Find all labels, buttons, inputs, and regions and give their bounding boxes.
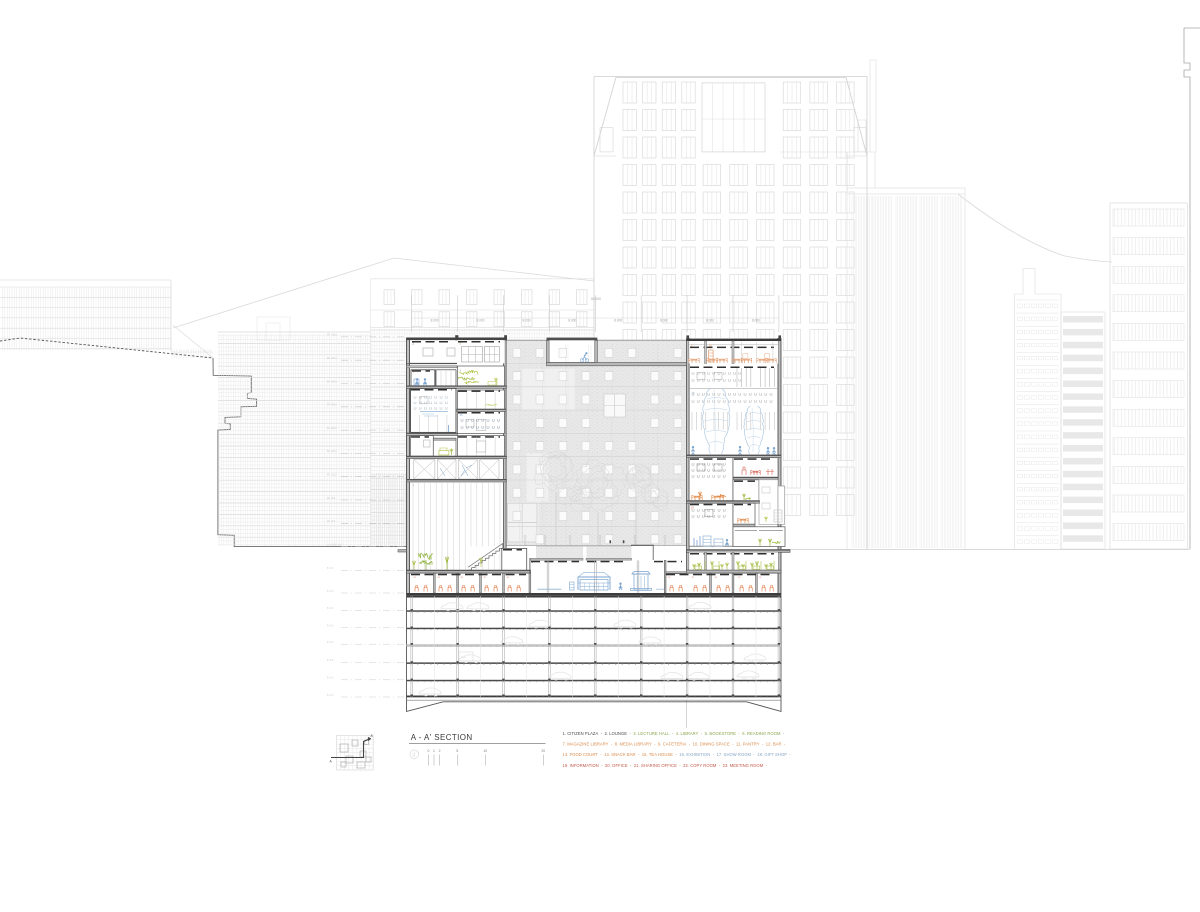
- svg-text:8.000: 8.000: [706, 319, 714, 323]
- svg-text:8.000: 8.000: [568, 319, 576, 323]
- svg-text:B -6.0: B -6.0: [327, 607, 334, 610]
- svg-text:5F +16.0: 5F +16.0: [327, 450, 337, 453]
- svg-text:8.000: 8.000: [477, 319, 485, 323]
- svg-text:GL +0.00 +0.0: GL +0.00 +0.0: [327, 543, 343, 546]
- svg-text:B -6.0: B -6.0: [327, 659, 334, 662]
- svg-text:8.000: 8.000: [660, 319, 668, 323]
- svg-text:RF +36.0: RF +36.0: [327, 334, 338, 337]
- svg-text:4F +12.0: 4F +12.0: [327, 474, 337, 477]
- svg-text:5: 5: [456, 749, 458, 753]
- svg-text:A': A': [371, 734, 374, 738]
- svg-text:3F +8.0: 3F +8.0: [327, 497, 336, 500]
- svg-text:20: 20: [541, 749, 545, 753]
- svg-text:7F +24.0: 7F +24.0: [327, 404, 337, 407]
- svg-text:8F +28.0: 8F +28.0: [327, 380, 337, 383]
- svg-text:10: 10: [483, 749, 487, 753]
- svg-text:2: 2: [439, 749, 441, 753]
- svg-text:84.000: 84.000: [591, 297, 601, 301]
- svg-text:1: 1: [433, 749, 435, 753]
- svg-text:8.000: 8.000: [523, 319, 531, 323]
- svg-text:13. FOOD COURT - 14. SNACK: 13. FOOD COURT - 14. SNACK BAR - 15. TEA…: [563, 752, 792, 757]
- svg-text:8.000: 8.000: [431, 319, 439, 323]
- svg-text:1. CITIZEN PLAZA - 2. LOUNGE: 1. CITIZEN PLAZA - 2. LOUNGE - 3. LECTUR…: [563, 731, 785, 736]
- svg-text:B -6.0: B -6.0: [327, 677, 334, 680]
- svg-text:2F +4.0: 2F +4.0: [327, 520, 336, 523]
- svg-text:B -6.0: B -6.0: [327, 694, 334, 697]
- svg-text:8.000: 8.000: [614, 319, 622, 323]
- svg-text:7. MAGAZINE LIBRARY - 8. MED: 7. MAGAZINE LIBRARY - 8. MEDIA LIBRARY -…: [563, 742, 786, 747]
- svg-text:B -5.0: B -5.0: [327, 590, 334, 593]
- svg-text:B -6.0: B -6.0: [327, 641, 334, 644]
- svg-text:19. INFORMATION - 20. OFFICE: 19. INFORMATION - 20. OFFICE - 21. SHARI…: [563, 763, 768, 768]
- svg-text:B -5.0: B -5.0: [327, 567, 334, 570]
- svg-text:A - A' SECTION: A - A' SECTION: [411, 733, 473, 742]
- svg-text:B -6.0: B -6.0: [327, 625, 334, 628]
- svg-text:0: 0: [427, 749, 429, 753]
- svg-text:9F +32.0: 9F +32.0: [327, 357, 337, 360]
- svg-text:Taxi: Taxi: [461, 655, 467, 659]
- svg-text:6F +20.0: 6F +20.0: [327, 427, 337, 430]
- svg-text:8.000: 8.000: [752, 319, 760, 323]
